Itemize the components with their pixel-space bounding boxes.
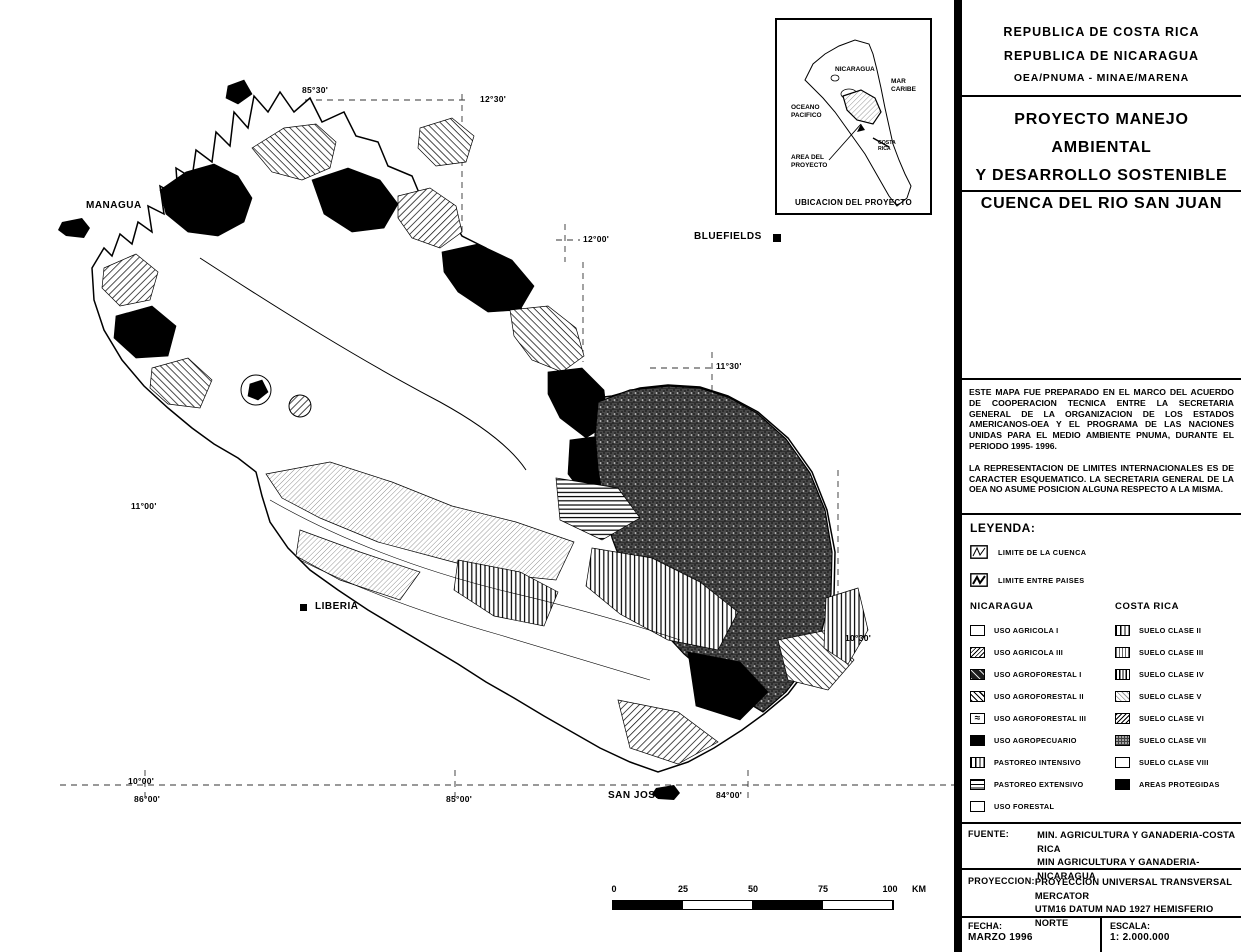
city-label-liberia: LIBERIA <box>315 601 359 612</box>
legend-swatch <box>970 779 985 790</box>
scale-label: ESCALA: <box>1110 921 1241 931</box>
legend-boundary-item: LIMITE ENTRE PAISES <box>970 569 1233 591</box>
scale-tick: 100 <box>882 884 897 894</box>
header-line: REPUBLICA DE COSTA RICA <box>962 20 1241 44</box>
graticule-label: 12°00' <box>583 234 609 244</box>
legend-swatch <box>1115 691 1130 702</box>
graticule-label: 85°30' <box>302 85 328 95</box>
legend-label: USO AGRICOLA I <box>994 626 1058 635</box>
inset-label-oceano-pacifico: OCEANO PACIFICO <box>791 104 831 119</box>
scale-tick: 50 <box>748 884 758 894</box>
scale-bar: 0 25 50 75 100 KM <box>612 884 904 926</box>
legend-label: SUELO CLASE VIII <box>1139 758 1209 767</box>
header-orgs: OEA/PNUMA - MINAE/MARENA <box>962 72 1241 84</box>
legend-swatch <box>970 757 985 768</box>
legend-label: USO AGROFORESTAL II <box>994 692 1084 701</box>
legend-label: USO AGROPECUARIO <box>994 736 1077 745</box>
source-values: MIN. AGRICULTURA Y GANADERIA-COSTA RICA … <box>1037 829 1241 868</box>
legend-label: PASTOREO INTENSIVO <box>994 758 1081 767</box>
legend-swatch <box>970 625 985 636</box>
legend-country-heading: COSTA RICA <box>1115 601 1233 612</box>
scale-cell: ESCALA: 1: 2.000.000 <box>1102 918 1241 952</box>
legend-item: SUELO CLASE II <box>1115 619 1233 641</box>
legend-heading: LEYENDA: <box>970 521 1233 535</box>
projection-block: PROYECCION: PROYECCION UNIVERSAL TRANSVE… <box>962 868 1241 916</box>
title-line: CUENCA DEL RIO SAN JUAN <box>962 190 1241 218</box>
inset-label-mar-caribe: MAR CARIBE <box>891 78 923 93</box>
scale-bar-segments <box>612 900 894 910</box>
graticule-label: 10°30' <box>845 633 871 643</box>
country-limit-icon <box>970 573 988 587</box>
date-cell: FECHA: MARZO 1996 <box>962 918 1102 952</box>
inset-label-area-del-proyecto: AREA DEL PROYECTO <box>791 154 843 169</box>
map-sheet-panel: REPUBLICA DE COSTA RICA REPUBLICA DE NIC… <box>962 0 1241 952</box>
projection-label: PROYECCION: <box>968 876 1035 916</box>
legend-swatch <box>1115 735 1130 746</box>
graticule-label: 10°00' <box>128 776 154 786</box>
legend-item: SUELO CLASE III <box>1115 641 1233 663</box>
legend-item: PASTOREO INTENSIVO <box>970 751 1115 773</box>
city-label-bluefields: BLUEFIELDS <box>694 231 762 242</box>
note-paragraph: ESTE MAPA FUE PREPARADO EN EL MARCO DEL … <box>969 387 1234 452</box>
legend-swatch <box>970 669 985 680</box>
legend-item: AREAS PROTEGIDAS <box>1115 773 1233 795</box>
legend-item: SUELO CLASE V <box>1115 685 1233 707</box>
source-label: FUENTE: <box>968 829 1037 868</box>
scale-segment <box>753 901 822 909</box>
note-paragraph: LA REPRESENTACION DE LIMITES INTERNACION… <box>969 463 1234 495</box>
legend-country-heading: NICARAGUA <box>970 601 1115 612</box>
legend-label: USO AGROFORESTAL I <box>994 670 1082 679</box>
location-inset: NICARAGUA MAR CARIBE OCEANO PACIFICO ARE… <box>775 18 932 215</box>
legend-item: USO AGROFORESTAL III <box>970 707 1115 729</box>
legend-label: SUELO CLASE II <box>1139 626 1201 635</box>
legend-item: USO FORESTAL <box>970 795 1115 817</box>
source-block: FUENTE: MIN. AGRICULTURA Y GANADERIA-COS… <box>962 822 1241 868</box>
legend-label: USO FORESTAL <box>994 802 1054 811</box>
panel-header: REPUBLICA DE COSTA RICA REPUBLICA DE NIC… <box>962 5 1241 95</box>
scale-segment <box>822 901 893 909</box>
scale-unit: KM <box>912 884 926 894</box>
legend-label: SUELO CLASE V <box>1139 692 1202 701</box>
legend-swatch <box>1115 669 1130 680</box>
title-line: Y DESARROLLO SOSTENIBLE <box>962 162 1241 190</box>
scale-tick: 25 <box>678 884 688 894</box>
basin-limit-icon <box>970 545 988 559</box>
legend-item: SUELO CLASE VII <box>1115 729 1233 751</box>
date-scale-row: FECHA: MARZO 1996 ESCALA: 1: 2.000.000 <box>962 916 1241 952</box>
legend-label: USO AGROFORESTAL III <box>994 714 1086 723</box>
legend-boundary-item: LIMITE DE LA CUENCA <box>970 541 1233 563</box>
legend: LEYENDA: LIMITE DE LA CUENCA LIMITE ENTR… <box>962 515 1241 822</box>
date-value: MARZO 1996 <box>968 932 1100 943</box>
graticule-label: 11°00' <box>131 501 157 511</box>
legend-label: SUELO CLASE IV <box>1139 670 1204 679</box>
title-line: PROYECTO MANEJO AMBIENTAL <box>962 106 1241 162</box>
main-map: 85°30' 12°30' 12°00' 11°30' 11°00' 10°30… <box>0 0 954 952</box>
inset-label-costa-rica: COSTA RICA <box>878 140 902 152</box>
inset-caption: UBICACION DEL PROYECTO <box>777 198 930 207</box>
legend-swatch <box>970 801 985 812</box>
city-label-managua: MANAGUA <box>86 200 142 211</box>
legend-label: PASTOREO EXTENSIVO <box>994 780 1083 789</box>
legend-item: USO AGROFORESTAL II <box>970 685 1115 707</box>
scanned-map-sheet: { "map": { "cities": { "managua": "MANAG… <box>0 0 1241 952</box>
legend-item: USO AGRICOLA III <box>970 641 1115 663</box>
legend-swatch <box>1115 757 1130 768</box>
legend-columns: NICARAGUA USO AGRICOLA I USO AGRICOLA II… <box>970 601 1233 817</box>
legend-label: USO AGRICOLA III <box>994 648 1063 657</box>
legend-swatch <box>1115 713 1130 724</box>
city-label-san-jose: SAN JOSE <box>608 790 663 801</box>
legend-label: LIMITE DE LA CUENCA <box>998 548 1086 557</box>
legend-item: SUELO CLASE VIII <box>1115 751 1233 773</box>
inset-label-nicaragua: NICARAGUA <box>835 66 875 74</box>
scale-bar-ticks: 0 25 50 75 100 KM <box>612 884 904 897</box>
legend-swatch <box>970 735 985 746</box>
graticule-label: 86°00' <box>134 794 160 804</box>
panel-divider-bar <box>954 0 962 952</box>
legend-item: SUELO CLASE IV <box>1115 663 1233 685</box>
project-title: PROYECTO MANEJO AMBIENTAL Y DESARROLLO S… <box>962 95 1241 192</box>
scale-segment <box>682 901 753 909</box>
graticule-label: 84°00' <box>716 790 742 800</box>
scale-tick: 75 <box>818 884 828 894</box>
legend-label: LIMITE ENTRE PAISES <box>998 576 1085 585</box>
graticule-label: 12°30' <box>480 94 506 104</box>
graticule-label: 85°00' <box>446 794 472 804</box>
legend-column-costa-rica: COSTA RICA SUELO CLASE II SUELO CLASE II… <box>1115 601 1233 817</box>
projection-line: PROYECCION UNIVERSAL TRANSVERSAL MERCATO… <box>1035 876 1241 903</box>
legend-swatch <box>970 691 985 702</box>
legend-swatch <box>970 713 985 724</box>
legend-swatch <box>1115 625 1130 636</box>
legend-item: PASTOREO EXTENSIVO <box>970 773 1115 795</box>
scale-tick: 0 <box>611 884 616 894</box>
legend-swatch <box>1115 647 1130 658</box>
legend-label: SUELO CLASE VI <box>1139 714 1204 723</box>
legend-label: AREAS PROTEGIDAS <box>1139 780 1220 789</box>
scale-value: 1: 2.000.000 <box>1110 932 1241 943</box>
legend-item: USO AGROFORESTAL I <box>970 663 1115 685</box>
notes-block: ESTE MAPA FUE PREPARADO EN EL MARCO DEL … <box>962 378 1241 515</box>
legend-item: USO AGRICOLA I <box>970 619 1115 641</box>
header-line: REPUBLICA DE NICARAGUA <box>962 44 1241 68</box>
legend-swatch <box>1115 779 1130 790</box>
graticule-label: 11°30' <box>716 361 742 371</box>
scale-segment <box>613 901 682 909</box>
source-line: MIN. AGRICULTURA Y GANADERIA-COSTA RICA <box>1037 829 1241 856</box>
legend-item: SUELO CLASE VI <box>1115 707 1233 729</box>
legend-swatch <box>970 647 985 658</box>
projection-values: PROYECCION UNIVERSAL TRANSVERSAL MERCATO… <box>1035 876 1241 916</box>
legend-label: SUELO CLASE III <box>1139 648 1204 657</box>
legend-column-nicaragua: NICARAGUA USO AGRICOLA I USO AGRICOLA II… <box>970 601 1115 817</box>
legend-label: SUELO CLASE VII <box>1139 736 1206 745</box>
date-label: FECHA: <box>968 921 1100 931</box>
legend-item: USO AGROPECUARIO <box>970 729 1115 751</box>
